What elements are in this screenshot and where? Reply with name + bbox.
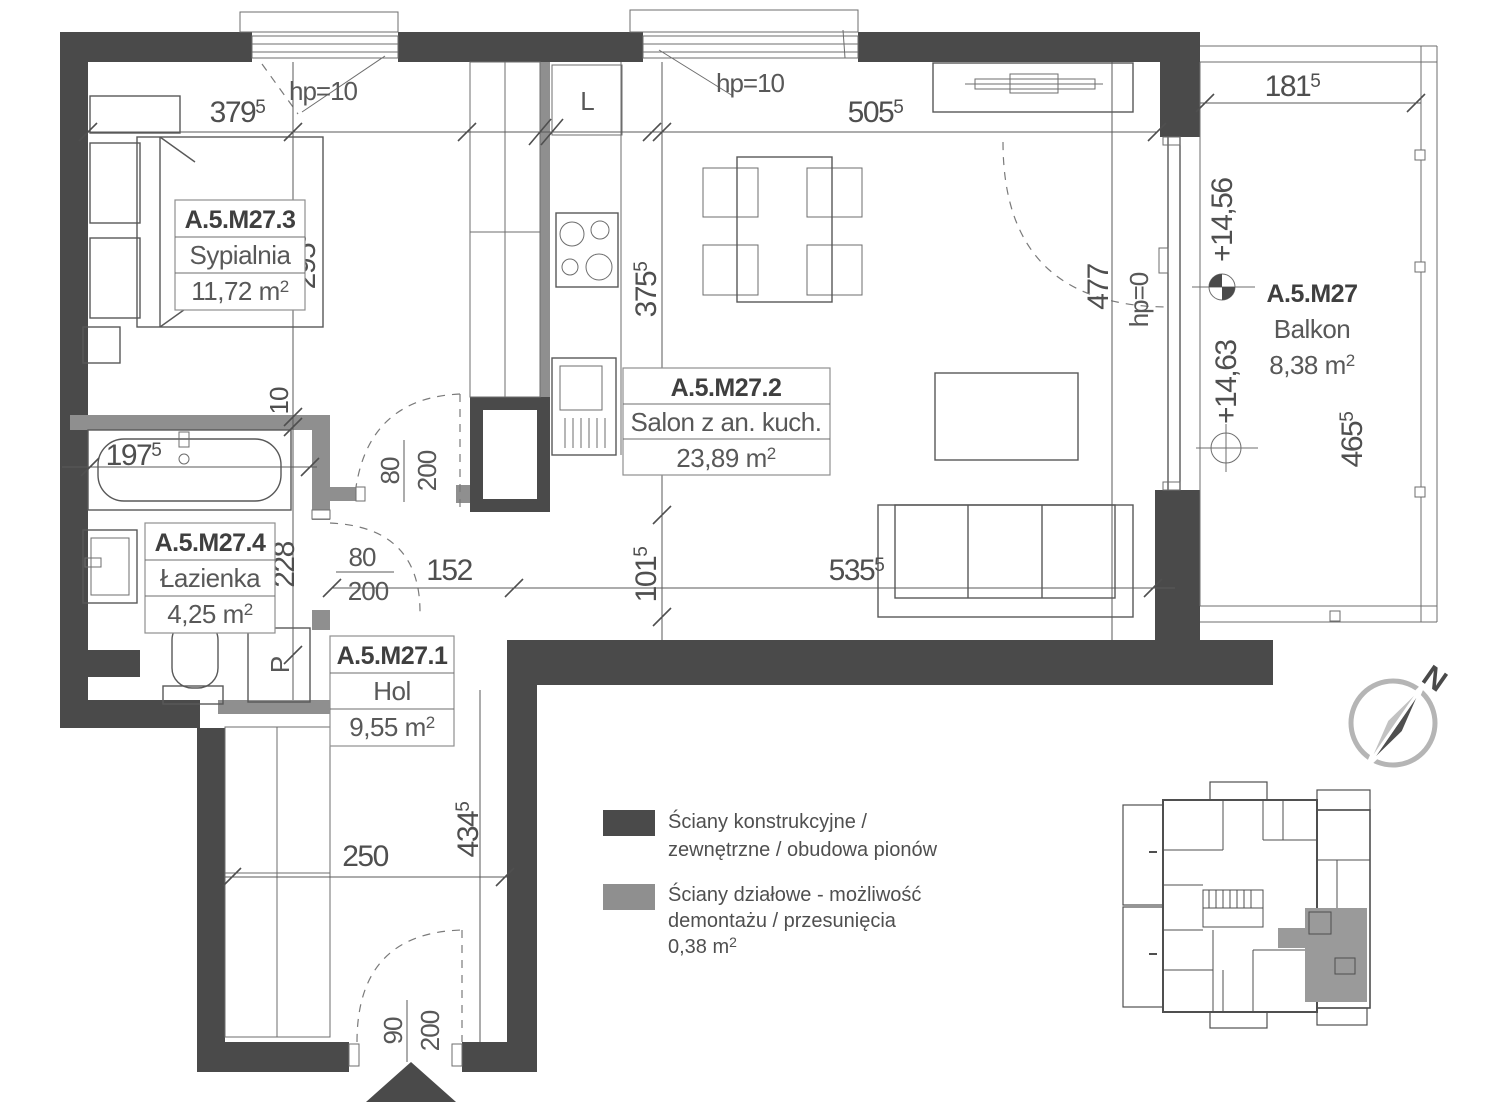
dim-505: 5055 — [848, 96, 904, 129]
tall-cabinet-icon — [470, 62, 540, 397]
fridge-label: L — [580, 86, 594, 116]
tv-cabinet-icon — [933, 63, 1133, 112]
svg-text:A.5.M27.3: A.5.M27.3 — [185, 206, 296, 234]
sink-icon — [83, 530, 137, 603]
dim-152: 152 — [426, 554, 472, 587]
bench-icon — [83, 327, 120, 363]
nightstand-icon — [90, 143, 140, 223]
room-label-balkon: A.5.M27 Balkon 8,38 m2 — [1267, 280, 1358, 380]
legend-swatch-structural — [603, 810, 655, 836]
svg-text:A.5.M27: A.5.M27 — [1267, 280, 1358, 308]
svg-text:9,55 m2: 9,55 m2 — [349, 712, 435, 742]
dim-250: 250 — [342, 840, 388, 873]
living-room-furniture — [703, 63, 1133, 617]
svg-text:200: 200 — [412, 450, 442, 491]
level-value-lower: +14,63 — [1210, 340, 1243, 424]
legend-partition-area: 0,38 m2 — [668, 934, 737, 958]
entrance-arrow — [366, 1062, 456, 1102]
sofa-icon — [878, 505, 1133, 617]
dim-535: 5355 — [829, 554, 885, 587]
compass-needle-light — [1366, 684, 1424, 768]
svg-text:A.5.M27.1: A.5.M27.1 — [337, 642, 448, 670]
wardrobe-icon — [225, 727, 330, 1037]
svg-text:11,72 m2: 11,72 m2 — [191, 276, 289, 306]
level-markers: +14,56 +14,63 — [1192, 178, 1258, 472]
legend-partition-line1: Ściany działowe - możliwość — [668, 882, 921, 906]
dim-181: 1815 — [1265, 70, 1321, 103]
room-label-hol: A.5.M27.1 Hol 9,55 m2 — [330, 636, 454, 746]
svg-text:90: 90 — [378, 1017, 408, 1044]
hp-label-bedroom: hp=10 — [289, 76, 358, 106]
legend-structural-line2: zewnętrzne / obudowa pionów — [668, 839, 938, 861]
svg-text:A.5.M27.4: A.5.M27.4 — [155, 529, 266, 557]
walls-partition — [70, 62, 550, 714]
dining-set-icon — [703, 157, 862, 302]
compass: N — [1351, 659, 1453, 768]
mini-plan-highlight — [1278, 908, 1367, 1002]
level-marker-upper: +14,56 — [1192, 178, 1255, 300]
nightstand-icon — [90, 238, 140, 318]
legend-partition-line2: demontażu / przesunięcia — [668, 910, 897, 932]
kitchen-sink-icon — [552, 358, 616, 455]
door-swing-entry-arc — [357, 930, 462, 1042]
door-size-hall: 80 200 — [375, 440, 442, 502]
svg-text:23,89 m2: 23,89 m2 — [676, 443, 775, 473]
svg-text:Salon z an. kuch.: Salon z an. kuch. — [631, 407, 822, 437]
door-swing-kitchen-arc — [356, 394, 460, 487]
room-label-lazienka: A.5.M27.4 Łazienka 4,25 m2 — [145, 523, 275, 633]
dim-477: 477 — [1082, 263, 1115, 309]
coffee-table-icon — [935, 373, 1078, 460]
legend: Ściany konstrukcyjne / zewnętrzne / obud… — [603, 809, 938, 958]
hp-label-balcony-door: hp=0 — [1124, 272, 1154, 327]
svg-text:80: 80 — [375, 457, 405, 484]
washer-icon: P — [248, 628, 310, 702]
floor-plan-svg: P L — [0, 0, 1500, 1115]
dim-465: 4655 — [1336, 412, 1369, 468]
duct-shaft — [470, 397, 550, 512]
svg-text:Sypialnia: Sypialnia — [189, 240, 291, 270]
svg-text:Hol: Hol — [373, 676, 411, 706]
dim-101: 1015 — [630, 547, 663, 603]
balcony-railing-posts — [1330, 150, 1425, 621]
level-marker-lower: +14,63 — [1196, 340, 1258, 472]
dim-10: 10 — [264, 387, 294, 414]
svg-text:A.5.M27.2: A.5.M27.2 — [671, 374, 782, 402]
legend-swatch-partition — [603, 884, 655, 910]
stove-icon — [556, 213, 618, 287]
svg-text:Balkon: Balkon — [1274, 314, 1351, 344]
svg-text:8,38 m2: 8,38 m2 — [1269, 350, 1355, 380]
fridge-icon: L — [552, 65, 622, 135]
dim-379: 3795 — [210, 96, 266, 129]
svg-text:200: 200 — [415, 1010, 445, 1051]
floor-plan-page: P L — [0, 0, 1500, 1115]
level-value-upper: +14,56 — [1206, 178, 1239, 262]
svg-text:80: 80 — [349, 542, 376, 572]
hp-label-salon: hp=10 — [716, 68, 785, 98]
door-size-entry: 90 200 — [378, 1000, 445, 1062]
balcony-glass-door — [1159, 137, 1180, 490]
legend-structural-line1: Ściany konstrukcyjne / — [668, 809, 867, 833]
mini-plan — [1123, 782, 1370, 1028]
room-label-sypialnia: A.5.M27.3 Sypialnia 11,72 m2 — [175, 200, 305, 310]
washer-label: P — [265, 657, 295, 673]
dresser-icon — [90, 96, 180, 133]
door-size-bath: 80 200 — [336, 542, 394, 606]
svg-text:4,25 m2: 4,25 m2 — [167, 599, 253, 629]
svg-text:Łazienka: Łazienka — [160, 563, 261, 593]
dim-375: 3755 — [630, 262, 663, 318]
svg-text:200: 200 — [348, 576, 389, 606]
room-label-salon: A.5.M27.2 Salon z an. kuch. 23,89 m2 — [623, 368, 830, 475]
